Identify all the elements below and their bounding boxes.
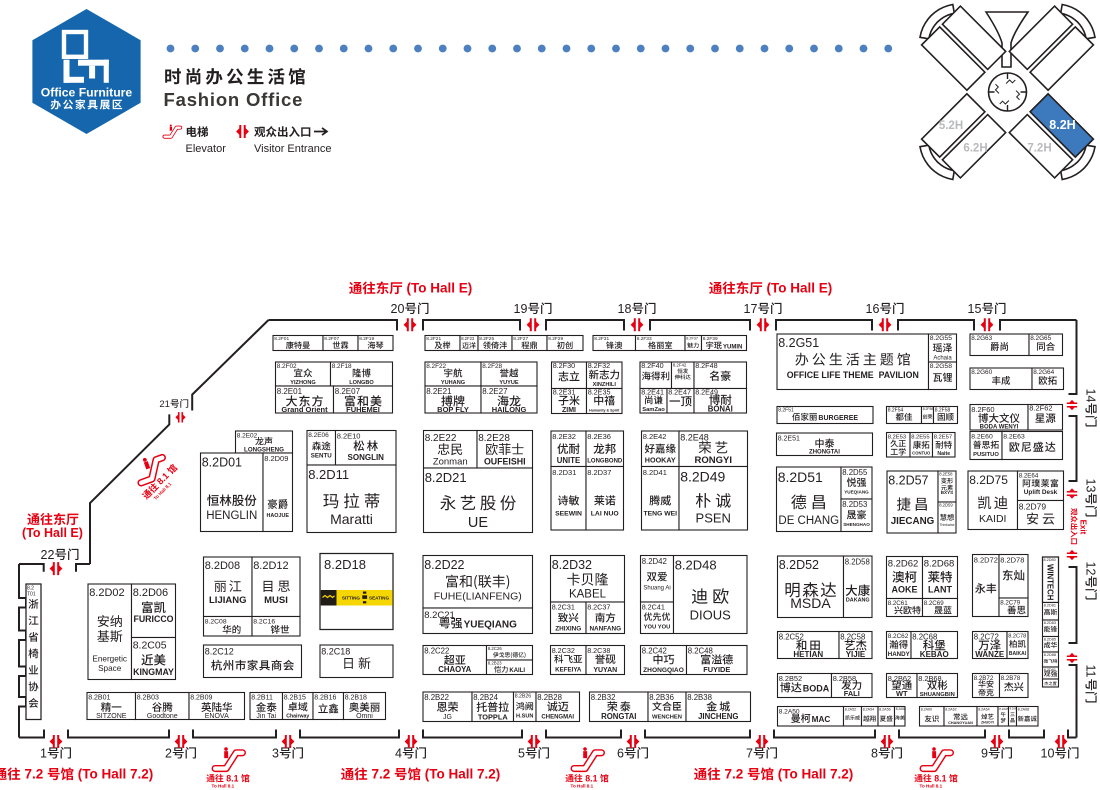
- svg-text:OFFICE LIFE THEME PAVILION: OFFICE LIFE THEME PAVILION: [787, 370, 919, 380]
- svg-text:Energetic: Energetic: [92, 655, 127, 664]
- svg-text:8.2C21: 8.2C21: [424, 610, 455, 621]
- svg-text:KABEL: KABEL: [569, 589, 607, 601]
- svg-text:CHAOYA: CHAOYA: [438, 665, 471, 674]
- svg-text:SHUANGBIN: SHUANGBIN: [920, 692, 955, 698]
- svg-text:8.2E55: 8.2E55: [911, 435, 929, 441]
- svg-text:JINCHENG: JINCHENG: [698, 712, 738, 721]
- svg-text:ZHUOYI: ZHUOYI: [981, 721, 994, 725]
- svg-text:(To Hall 7.2): (To Hall 7.2): [774, 767, 853, 782]
- svg-text:8.2F22: 8.2F22: [426, 363, 446, 370]
- svg-text:8.2C05: 8.2C05: [133, 640, 167, 652]
- svg-text:7.2: 7.2: [721, 767, 747, 782]
- svg-text:PSEN: PSEN: [696, 511, 731, 526]
- svg-text:22: 22: [41, 548, 55, 562]
- svg-text:8.2E42: 8.2E42: [643, 432, 667, 441]
- svg-text:Uplift Desk: Uplift Desk: [1024, 489, 1058, 496]
- svg-text:8.2D37: 8.2D37: [587, 468, 611, 477]
- svg-text:FALI: FALI: [844, 689, 860, 698]
- svg-text:FURICCO: FURICCO: [133, 614, 173, 624]
- svg-text:LIJIANG: LIJIANG: [209, 595, 246, 606]
- svg-text:Humanity & Spirit: Humanity & Spirit: [589, 409, 620, 413]
- svg-text:YOU YOU: YOU YOU: [644, 625, 671, 631]
- svg-text:ZHONGTAI: ZHONGTAI: [809, 450, 840, 456]
- svg-text:8.2B23: 8.2B23: [488, 661, 502, 666]
- svg-text:CHENGMAI: CHENGMAI: [541, 715, 574, 721]
- svg-text:8.2E36: 8.2E36: [587, 432, 611, 441]
- svg-text:Chairway: Chairway: [286, 714, 309, 720]
- svg-text:8.2D83: 8.2D83: [1044, 621, 1056, 625]
- svg-text:8.2C48: 8.2C48: [688, 647, 713, 656]
- svg-text:8.2C41: 8.2C41: [642, 603, 665, 612]
- svg-text:HANDY: HANDY: [888, 651, 911, 658]
- svg-text:8.2A54: 8.2A54: [863, 707, 874, 711]
- svg-text:8.2F56: 8.2F56: [923, 407, 934, 411]
- svg-text:8.2E53: 8.2E53: [888, 435, 906, 441]
- svg-text:Achaia: Achaia: [933, 356, 952, 362]
- svg-text:LONGBO: LONGBO: [349, 380, 374, 386]
- svg-text:8: 8: [871, 746, 878, 760]
- svg-text:SITTING: SITTING: [342, 595, 361, 600]
- svg-text:8.2B24: 8.2B24: [473, 693, 498, 702]
- svg-text:8.2F30: 8.2F30: [553, 361, 575, 370]
- svg-text:NANFANG: NANFANG: [589, 626, 621, 633]
- svg-text:RONGTAI: RONGTAI: [601, 712, 636, 721]
- svg-text:KAILI: KAILI: [509, 668, 525, 674]
- svg-text:8.2D52: 8.2D52: [779, 558, 819, 572]
- svg-text:8.2E21: 8.2E21: [426, 387, 452, 396]
- svg-text:MUSI: MUSI: [264, 595, 288, 606]
- svg-text:TOPPLA: TOPPLA: [478, 713, 509, 722]
- svg-text:8.2E41: 8.2E41: [641, 388, 664, 397]
- svg-text:6: 6: [617, 746, 624, 760]
- svg-text:10: 10: [1041, 746, 1055, 760]
- svg-text:ENOVA: ENOVA: [205, 713, 229, 720]
- svg-text:BURGEREE: BURGEREE: [818, 415, 858, 422]
- svg-text:BONAI: BONAI: [708, 405, 733, 414]
- svg-text:8.2D21: 8.2D21: [425, 470, 467, 485]
- svg-text:YIZHONG: YIZHONG: [290, 380, 315, 386]
- svg-text:8.2E10: 8.2E10: [337, 432, 361, 441]
- svg-text:8.2C61: 8.2C61: [888, 600, 909, 607]
- svg-text:LONGBOND: LONGBOND: [587, 459, 623, 465]
- svg-text:8.2E32: 8.2E32: [552, 432, 576, 441]
- svg-text:21: 21: [159, 399, 170, 410]
- svg-text:2: 2: [165, 746, 172, 760]
- svg-text:WINTECH: WINTECH: [1046, 564, 1055, 601]
- svg-text:8.2C31: 8.2C31: [552, 603, 575, 612]
- svg-text:CONTUO: CONTUO: [912, 451, 931, 456]
- svg-text:8.2F23: 8.2F23: [461, 336, 475, 341]
- svg-text:JIECANG: JIECANG: [891, 516, 935, 527]
- svg-text:(To Hall E): (To Hall E): [403, 281, 473, 296]
- svg-text:17: 17: [744, 302, 758, 316]
- svg-text:Visitor Entrance: Visitor Entrance: [254, 143, 331, 155]
- svg-text:8.2D06: 8.2D06: [133, 587, 168, 599]
- svg-text:8.2F07: 8.2F07: [324, 336, 339, 342]
- svg-text:8.2C79: 8.2C79: [1000, 599, 1021, 606]
- svg-text:8.2D49: 8.2D49: [680, 469, 725, 485]
- svg-text:YUMIN: YUMIN: [723, 344, 742, 350]
- svg-text:8.2A56: 8.2A56: [879, 707, 890, 711]
- svg-text:8.2G63: 8.2G63: [971, 335, 992, 342]
- svg-text:Zonman: Zonman: [433, 457, 468, 468]
- svg-text:8.2F51: 8.2F51: [778, 408, 794, 414]
- svg-text:MAC: MAC: [812, 715, 831, 724]
- svg-text:Exit: Exit: [1079, 520, 1088, 535]
- svg-text:8.2D88: 8.2D88: [1044, 653, 1056, 657]
- svg-text:8.2D11: 8.2D11: [308, 467, 349, 482]
- svg-text:FUHE(LIANFENG): FUHE(LIANFENG): [434, 591, 522, 603]
- svg-text:ZHIXING: ZHIXING: [555, 626, 581, 633]
- svg-text:8.2D32: 8.2D32: [552, 558, 592, 572]
- svg-text:8.2D53: 8.2D53: [842, 500, 867, 509]
- svg-text:8.2F48: 8.2F48: [695, 361, 717, 370]
- svg-text:8.2B52: 8.2B52: [779, 674, 802, 683]
- svg-text:HENGLIN: HENGLIN: [206, 510, 257, 522]
- svg-text:8.2E27: 8.2E27: [482, 387, 508, 396]
- svg-text:8.2C37: 8.2C37: [587, 603, 610, 612]
- svg-text:8.2C32: 8.2C32: [552, 646, 575, 655]
- svg-text:To Hall 8.1: To Hall 8.1: [212, 784, 235, 789]
- svg-text:LAI NUO: LAI NUO: [591, 511, 619, 518]
- svg-text:8.2G65: 8.2G65: [1030, 335, 1051, 342]
- svg-text:7.2: 7.2: [21, 767, 47, 782]
- svg-text:T01: T01: [27, 592, 36, 598]
- svg-text:BOP FLY: BOP FLY: [437, 405, 469, 414]
- svg-text:SITZONE: SITZONE: [96, 713, 127, 720]
- svg-text:8.2D22: 8.2D22: [424, 558, 464, 572]
- svg-text:8.2D85: 8.2D85: [1044, 638, 1056, 642]
- svg-text:SEEWIN: SEEWIN: [555, 511, 582, 518]
- svg-text:8.2A60: 8.2A60: [921, 707, 932, 711]
- svg-text:H.SUN: H.SUN: [516, 714, 533, 720]
- svg-text:8.2F25: 8.2F25: [479, 336, 494, 342]
- svg-text:8.2A52: 8.2A52: [845, 707, 856, 711]
- svg-text:Fashion Office: Fashion Office: [164, 89, 304, 110]
- svg-text:8.2F19: 8.2F19: [359, 336, 374, 342]
- svg-text:FUHEMEI: FUHEMEI: [346, 405, 380, 414]
- svg-text:8.2F54: 8.2F54: [888, 408, 904, 414]
- svg-text:7.2: 7.2: [368, 767, 394, 782]
- svg-text:20: 20: [391, 302, 405, 316]
- svg-text:8.2D62: 8.2D62: [888, 559, 919, 570]
- svg-text:YUYUE: YUYUE: [499, 380, 519, 386]
- svg-text:YIJIE: YIJIE: [846, 650, 866, 659]
- svg-text:TENG WEI: TENG WEI: [643, 511, 677, 518]
- svg-text:8.2B11: 8.2B11: [251, 695, 273, 702]
- svg-text:Space: Space: [98, 664, 122, 673]
- svg-text:8.2B78: 8.2B78: [1001, 675, 1021, 682]
- svg-text:8.2F60: 8.2F60: [971, 405, 994, 414]
- svg-text:Thinkwise: Thinkwise: [939, 523, 954, 527]
- svg-text:WENCHEN: WENCHEN: [652, 715, 682, 721]
- svg-text:8.2F27: 8.2F27: [513, 336, 528, 342]
- svg-text:AOKE: AOKE: [891, 585, 917, 595]
- svg-text:8.2C62: 8.2C62: [888, 633, 909, 640]
- svg-text:8.2D68: 8.2D68: [924, 559, 955, 570]
- svg-text:SENTU: SENTU: [311, 453, 333, 460]
- svg-text:8.2C12: 8.2C12: [205, 647, 234, 657]
- svg-text:6.2H: 6.2H: [963, 143, 987, 155]
- svg-text:Elevator: Elevator: [186, 143, 227, 155]
- svg-text:HAOJUE: HAOJUE: [267, 513, 290, 519]
- svg-text:HOOKAY: HOOKAY: [645, 456, 676, 465]
- svg-text:8.2G64: 8.2G64: [1033, 369, 1054, 376]
- svg-text:8.2E06: 8.2E06: [308, 432, 329, 439]
- svg-text:5.2H: 5.2H: [939, 120, 963, 132]
- svg-text:8.2D58: 8.2D58: [845, 558, 870, 567]
- svg-text:8.2C42: 8.2C42: [642, 647, 667, 656]
- svg-text:8.2F33: 8.2F33: [637, 336, 652, 342]
- svg-text:Goodtone: Goodtone: [147, 713, 178, 720]
- svg-text:8.2B16: 8.2B16: [314, 695, 336, 702]
- svg-text:8.2F39: 8.2F39: [703, 336, 718, 342]
- svg-text:8.2E28: 8.2E28: [478, 433, 510, 444]
- svg-text:BODA WENYI: BODA WENYI: [980, 425, 1019, 431]
- svg-text:14: 14: [1084, 389, 1098, 403]
- svg-text:Maratti: Maratti: [330, 511, 373, 527]
- svg-text:8.2F01: 8.2F01: [274, 336, 289, 342]
- svg-text:YUYAN: YUYAN: [593, 667, 617, 674]
- svg-text:8.2A68: 8.2A68: [1018, 707, 1029, 711]
- svg-text:8.2D09: 8.2D09: [264, 454, 288, 463]
- svg-text:3: 3: [272, 746, 279, 760]
- svg-text:8.2F18: 8.2F18: [332, 363, 352, 370]
- svg-text:8.2B09: 8.2B09: [190, 695, 212, 702]
- svg-text:8.2C69: 8.2C69: [924, 600, 945, 607]
- svg-text:LANT: LANT: [928, 585, 952, 595]
- svg-text:8.2E22: 8.2E22: [425, 433, 457, 444]
- svg-text:SHENGHAO: SHENGHAO: [843, 522, 870, 527]
- svg-text:8.2D48: 8.2D48: [675, 558, 717, 573]
- svg-text:8.2D78: 8.2D78: [1000, 556, 1024, 565]
- svg-text:8.2D55: 8.2D55: [842, 468, 868, 477]
- svg-text:8.2D18: 8.2D18: [324, 557, 366, 572]
- svg-text:8.2C08: 8.2C08: [205, 619, 227, 626]
- svg-text:Office Furniture: Office Furniture: [41, 86, 133, 100]
- svg-text:8.2A64: 8.2A64: [978, 707, 989, 711]
- svg-text:8.2D02: 8.2D02: [89, 587, 124, 599]
- svg-text:DE CHANG: DE CHANG: [778, 515, 839, 527]
- svg-text:MSDA: MSDA: [790, 595, 831, 611]
- svg-text:8.2C78: 8.2C78: [1008, 633, 1026, 639]
- svg-text:SONGLIN: SONGLIN: [348, 453, 385, 462]
- svg-text:8.2G60: 8.2G60: [971, 369, 992, 376]
- svg-text:8.2B03: 8.2B03: [137, 695, 159, 702]
- svg-text:1: 1: [40, 746, 47, 760]
- svg-text:8.2D51: 8.2D51: [778, 469, 823, 485]
- svg-text:8.2E64: 8.2E64: [1019, 473, 1039, 480]
- svg-text:JG: JG: [443, 714, 452, 721]
- svg-text:8.2C26: 8.2C26: [488, 646, 503, 651]
- svg-text:8.2A58: 8.2A58: [896, 707, 906, 711]
- svg-text:CHANGYUAN: CHANGYUAN: [948, 721, 973, 725]
- svg-text:Naite: Naite: [937, 451, 950, 457]
- svg-text:8.2B28: 8.2B28: [537, 693, 562, 702]
- svg-text:18: 18: [618, 302, 632, 316]
- svg-text:8.2G51: 8.2G51: [778, 336, 819, 350]
- svg-text:Omni: Omni: [356, 713, 373, 720]
- svg-text:8.1: 8.1: [932, 773, 949, 783]
- svg-text:FUYIDE: FUYIDE: [703, 665, 730, 674]
- svg-text:11: 11: [1084, 665, 1098, 678]
- svg-text:8.2A65: 8.2A65: [999, 707, 1009, 711]
- svg-text:8.2F31: 8.2F31: [594, 336, 609, 342]
- svg-text:8.2D57: 8.2D57: [888, 474, 928, 488]
- svg-text:KEFEIYA: KEFEIYA: [555, 667, 582, 674]
- svg-text:BXYS: BXYS: [941, 490, 954, 495]
- svg-text:8.2B18: 8.2B18: [345, 695, 367, 702]
- svg-text:8.2E47: 8.2E47: [668, 388, 691, 397]
- svg-text:UNITE: UNITE: [557, 456, 580, 465]
- svg-text:8.2C72: 8.2C72: [974, 633, 999, 642]
- svg-text:8.2C68: 8.2C68: [912, 633, 937, 642]
- svg-text:(To Hall 7.2): (To Hall 7.2): [421, 767, 500, 782]
- svg-text:8.2F21: 8.2F21: [426, 336, 441, 342]
- svg-text:8.2D79: 8.2D79: [1019, 502, 1047, 512]
- svg-text:8.2B38: 8.2B38: [687, 693, 712, 702]
- svg-text:8.2C22: 8.2C22: [424, 647, 449, 656]
- svg-text:8.2A62: 8.2A62: [945, 707, 956, 711]
- svg-text:Jin Tai: Jin Tai: [256, 713, 276, 720]
- svg-text:19: 19: [514, 302, 528, 316]
- svg-text:8.2D08: 8.2D08: [205, 560, 240, 572]
- svg-text:8.2D75: 8.2D75: [969, 473, 1008, 487]
- svg-text:8.2C18: 8.2C18: [321, 647, 350, 657]
- svg-text:KAIDI: KAIDI: [979, 513, 1006, 525]
- svg-text:8.2E02: 8.2E02: [237, 433, 258, 440]
- svg-text:To Hall 8.1: To Hall 8.1: [571, 784, 594, 789]
- svg-text:7.2H: 7.2H: [1027, 143, 1051, 155]
- svg-text:8.1: 8.1: [583, 773, 600, 783]
- svg-text:SamZao: SamZao: [642, 407, 665, 413]
- svg-text:8.2D31: 8.2D31: [552, 468, 576, 477]
- svg-text:Grand Orient: Grand Orient: [281, 405, 328, 414]
- svg-text:8.2B58: 8.2B58: [833, 674, 856, 683]
- svg-text:YUEQIANG: YUEQIANG: [844, 490, 869, 495]
- svg-text:HETIAN: HETIAN: [793, 650, 823, 659]
- svg-text:Shuang Ai: Shuang Ai: [643, 586, 670, 592]
- svg-text:SEATING: SEATING: [369, 595, 390, 600]
- svg-text:8.2C38: 8.2C38: [587, 646, 610, 655]
- svg-text:UE: UE: [468, 515, 488, 531]
- svg-text:BODA: BODA: [803, 684, 830, 694]
- svg-text:8.2B15: 8.2B15: [284, 695, 306, 702]
- svg-text:WT: WT: [896, 689, 908, 698]
- svg-text:8.2E51: 8.2E51: [778, 436, 800, 443]
- svg-text:8.2B01: 8.2B01: [88, 695, 110, 702]
- svg-text:YUEQIANG: YUEQIANG: [464, 620, 518, 631]
- svg-text:8.2B32: 8.2B32: [591, 693, 616, 702]
- svg-text:5: 5: [518, 746, 525, 760]
- svg-text:WANZE: WANZE: [975, 650, 1005, 659]
- svg-text:8.2F62: 8.2F62: [1029, 404, 1052, 413]
- svg-text:8.2B22: 8.2B22: [424, 693, 449, 702]
- svg-text:8.2F28: 8.2F28: [482, 363, 502, 370]
- svg-text:YUHANG: YUHANG: [441, 380, 465, 386]
- svg-text:8.2F37: 8.2F37: [686, 337, 698, 341]
- svg-text:DIOUS: DIOUS: [690, 608, 732, 623]
- svg-text:ZIMI: ZIMI: [562, 407, 576, 414]
- svg-text:PUSITUO: PUSITUO: [973, 452, 999, 458]
- svg-text:8.2E60: 8.2E60: [971, 434, 993, 441]
- svg-text:BAIKAI: BAIKAI: [1009, 651, 1027, 657]
- svg-text:8.2D80: 8.2D80: [1044, 558, 1056, 562]
- svg-text:DAKANG: DAKANG: [846, 598, 870, 604]
- svg-text:8.2D72: 8.2D72: [974, 556, 998, 565]
- svg-text:(To Hall E): (To Hall E): [22, 526, 83, 540]
- svg-text:8.2F40: 8.2F40: [641, 361, 663, 370]
- svg-text:KEBAO: KEBAO: [920, 650, 949, 659]
- svg-text:8.2H: 8.2H: [1049, 118, 1075, 132]
- svg-text:8.2D12: 8.2D12: [253, 560, 288, 572]
- svg-text:8.2D41: 8.2D41: [643, 468, 667, 477]
- svg-text:OUFEISHI: OUFEISHI: [484, 457, 526, 467]
- svg-text:7: 7: [746, 746, 753, 760]
- svg-text:8.2C16: 8.2C16: [253, 619, 275, 626]
- svg-text:8.2G55: 8.2G55: [930, 335, 953, 342]
- svg-text:12: 12: [1084, 562, 1098, 576]
- svg-text:8.2B36: 8.2B36: [649, 693, 674, 702]
- svg-text:8.2F32: 8.2F32: [588, 361, 610, 370]
- svg-text:(To Hall E): (To Hall E): [763, 281, 833, 296]
- svg-text:(To Hall 7.2): (To Hall 7.2): [74, 767, 153, 782]
- svg-text:4: 4: [395, 746, 402, 760]
- svg-text:15: 15: [968, 302, 982, 316]
- svg-text:8.2B72: 8.2B72: [974, 675, 994, 682]
- svg-text:8.2D59: 8.2D59: [939, 503, 953, 508]
- svg-text:To Hall 8.1: To Hall 8.1: [920, 784, 943, 789]
- svg-text:8.2E31: 8.2E31: [553, 388, 576, 397]
- svg-text:ZHONGQIAO: ZHONGQIAO: [643, 667, 684, 674]
- svg-text:8.2B26: 8.2B26: [515, 694, 532, 700]
- svg-text:8.1: 8.1: [224, 773, 241, 783]
- svg-text:8.2E01: 8.2E01: [277, 387, 303, 396]
- svg-text:13: 13: [1084, 479, 1098, 493]
- svg-text:8.2D01: 8.2D01: [202, 456, 242, 470]
- svg-text:16: 16: [866, 302, 880, 316]
- svg-text:8.2E63: 8.2E63: [1003, 434, 1025, 441]
- svg-text:8.2E48: 8.2E48: [680, 433, 709, 443]
- svg-text:8.2F58: 8.2F58: [935, 408, 951, 414]
- svg-text:8.2F02: 8.2F02: [277, 363, 297, 370]
- svg-text:8.2D42: 8.2D42: [642, 557, 667, 566]
- svg-text:8.2F42: 8.2F42: [673, 363, 687, 368]
- svg-text:RONGYI: RONGYI: [695, 455, 732, 466]
- svg-text:8.2F29: 8.2F29: [548, 336, 563, 342]
- svg-text:9: 9: [981, 746, 988, 760]
- svg-text:8.2G58: 8.2G58: [930, 363, 953, 370]
- svg-text:HAILONG: HAILONG: [492, 405, 527, 414]
- svg-text:8.2E57: 8.2E57: [934, 435, 952, 441]
- svg-text:KINGMAY: KINGMAY: [133, 667, 174, 677]
- svg-text:8.2E07: 8.2E07: [335, 387, 361, 396]
- svg-text:8.2D81: 8.2D81: [1044, 604, 1056, 608]
- svg-text:8.2E58: 8.2E58: [939, 472, 953, 477]
- svg-text:8.2E49: 8.2E49: [695, 388, 718, 397]
